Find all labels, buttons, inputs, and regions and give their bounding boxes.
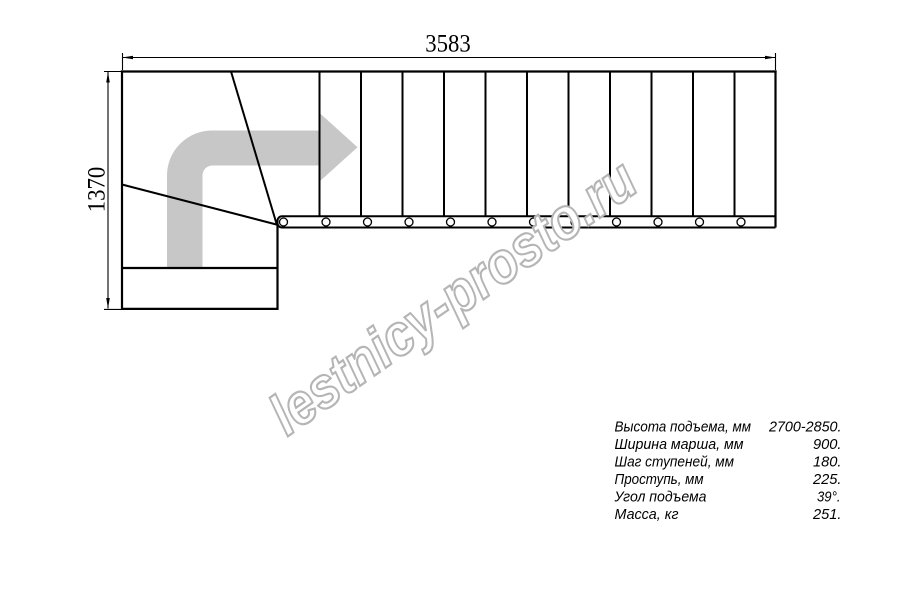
svg-text:Ширина марша, мм: Ширина марша, мм — [615, 436, 744, 453]
svg-text:39°.: 39°. — [817, 489, 841, 506]
svg-text:Высота подъема, мм: Высота подъема, мм — [615, 419, 752, 436]
svg-text:900.: 900. — [813, 436, 842, 453]
svg-text:2700-2850.: 2700-2850. — [768, 419, 841, 436]
svg-text:180.: 180. — [813, 454, 842, 471]
svg-text:3583: 3583 — [425, 31, 471, 58]
svg-text:Проступь, мм: Проступь, мм — [615, 471, 704, 488]
svg-text:Масса, кг: Масса, кг — [615, 506, 680, 523]
svg-text:251.: 251. — [812, 506, 841, 523]
svg-text:Шаг ступеней, мм: Шаг ступеней, мм — [615, 454, 735, 471]
svg-text:Угол подъема: Угол подъема — [614, 489, 707, 506]
svg-text:225.: 225. — [812, 471, 841, 488]
svg-text:1370: 1370 — [84, 167, 111, 213]
